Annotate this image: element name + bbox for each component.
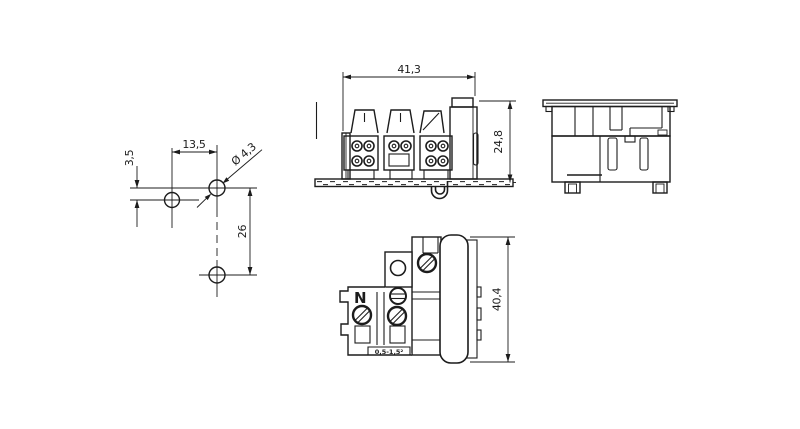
dimension-front-height: 24,8: [479, 101, 516, 183]
rail-hook: [432, 181, 448, 199]
dimension-hole-spacing-vertical: 26: [236, 188, 252, 275]
side-view: [543, 100, 677, 193]
cover-capsule: [440, 235, 468, 363]
dim-label-13-5: 13,5: [182, 138, 206, 151]
dimension-hole-diameter-leader: Ø 4,3: [197, 140, 262, 207]
tab-3: [477, 330, 481, 340]
slot-right: [640, 138, 648, 170]
terminal-module-3: [420, 111, 452, 179]
front-view: 41,3 24,8: [315, 63, 516, 199]
mounting-tab: [385, 252, 412, 287]
drawing-canvas: 13,5 3,5 26 Ø 4,3: [0, 0, 800, 429]
dim-label-24-8: 24,8: [492, 130, 505, 154]
dim-label-26: 26: [236, 225, 249, 239]
dim-label-40-4: 40,4: [491, 288, 504, 312]
wire-range-marking: 0,5-1,5²: [375, 348, 404, 356]
flange-cap-right: [668, 107, 674, 112]
tab-2: [477, 308, 481, 320]
din-rail: [315, 179, 513, 187]
terminal-module-2: [384, 110, 414, 179]
foot-left: [565, 182, 580, 193]
top-view: N 0,5-1,5² 40,4: [340, 235, 515, 363]
dimension-front-width: 41,3: [343, 63, 475, 131]
screw-small-center: [390, 288, 406, 304]
foot-right: [653, 182, 667, 193]
right-body-section: [450, 98, 478, 179]
dimension-hole-spacing-horizontal: 13,5: [172, 138, 217, 154]
main-body: [340, 287, 412, 355]
center-tab: [625, 136, 635, 142]
hole-pattern-view: 13,5 3,5 26 Ø 4,3: [123, 138, 262, 297]
neutral-marking: N: [354, 289, 367, 307]
top-step: [452, 98, 473, 107]
terminal-module-1: [344, 110, 378, 179]
dim-label-3-5: 3,5: [123, 149, 136, 166]
dim-label-41-3: 41,3: [397, 63, 421, 76]
tab-1: [477, 287, 481, 297]
upper-housing: [552, 107, 670, 137]
technical-drawing: 13,5 3,5 26 Ø 4,3: [0, 0, 800, 429]
dim-label-diameter: Ø 4,3: [229, 140, 259, 168]
flange-cap-left: [546, 107, 552, 112]
slot-left: [608, 138, 617, 170]
